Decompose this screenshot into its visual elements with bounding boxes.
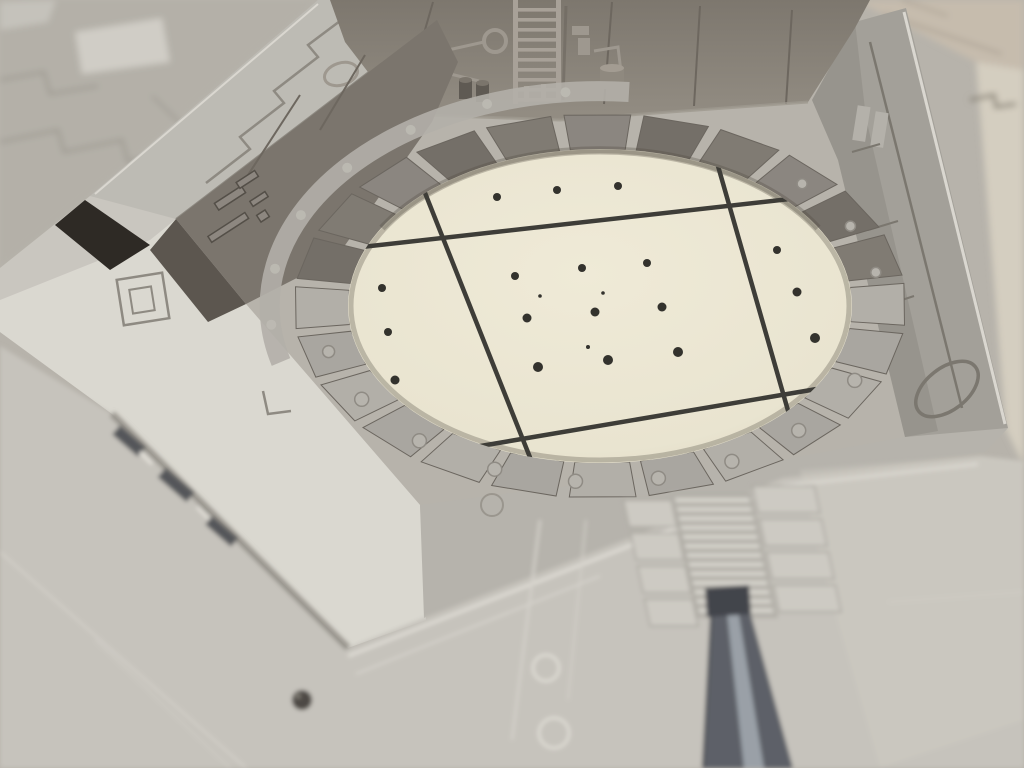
floor-vent-hole — [591, 308, 600, 317]
track-rung — [679, 516, 754, 520]
collar-bump — [270, 264, 280, 274]
track-rung — [675, 498, 750, 502]
track-side-panel — [623, 500, 677, 527]
track-rung — [691, 572, 766, 576]
collar-bump — [296, 210, 306, 220]
floor-vent-hole — [601, 291, 605, 295]
mini-cylinder-greeble-top — [459, 77, 472, 83]
floor-vent-hole — [384, 328, 392, 336]
collar-bump — [406, 125, 416, 135]
ring-rivet — [355, 392, 369, 406]
track-rung — [681, 526, 756, 530]
scene-canvas — [0, 0, 1024, 768]
floor-vent-hole — [673, 347, 683, 357]
track-side-panel — [630, 533, 684, 560]
ring-rivet — [848, 373, 862, 387]
track-rung — [693, 581, 768, 585]
bracket-greeble — [578, 38, 590, 55]
track-side-panel — [752, 486, 820, 513]
track-side-panel — [759, 519, 827, 546]
floor-vent-hole — [391, 376, 400, 385]
ladder-rung — [513, 18, 561, 22]
floor-vent-hole — [603, 355, 613, 365]
floor-vent-hole — [523, 314, 532, 323]
ladder-rung — [513, 38, 561, 42]
floor-vent-hole — [538, 294, 542, 298]
collar-bump — [482, 99, 492, 109]
ring-rivet — [725, 454, 739, 468]
track-rung — [689, 562, 764, 566]
mini-cylinder-greeble-top — [476, 80, 489, 86]
floor-vent-hole — [810, 333, 820, 343]
ladder-rung — [513, 48, 561, 52]
ring-rivet — [871, 267, 881, 277]
ring-rivet — [651, 471, 665, 485]
track-side-panel — [766, 552, 834, 579]
hull-screw-highlight — [295, 693, 301, 699]
ladder-rung — [513, 68, 561, 72]
ring-segment — [564, 115, 631, 150]
ladder-rung — [513, 8, 561, 12]
floor-vent-hole — [643, 259, 651, 267]
floor-vent-hole — [793, 288, 802, 297]
ladder-rung — [513, 78, 561, 82]
model-kit-photo — [0, 0, 1024, 768]
track-side-panel — [644, 599, 698, 626]
floor-vent-hole — [773, 246, 781, 254]
ring-rivet — [488, 462, 502, 476]
floor-vent-hole — [533, 362, 543, 372]
ring-rivet — [323, 346, 335, 358]
track-side-panel — [637, 566, 691, 593]
ring-rivet — [569, 474, 583, 488]
track-rung — [677, 507, 752, 511]
collar-bump — [266, 320, 276, 330]
canister-greeble-top — [600, 64, 624, 72]
ring-rivet — [792, 424, 806, 438]
ladder-rung — [513, 58, 561, 62]
floor-vent-hole — [578, 264, 586, 272]
ring-rivet — [797, 179, 807, 189]
ring-segment — [296, 287, 350, 329]
floor-vent-hole — [493, 193, 501, 201]
floor-vent-hole — [378, 284, 386, 292]
hull-screw — [292, 690, 312, 710]
track-side-panel — [773, 585, 841, 612]
ring-rivet — [845, 221, 855, 231]
collar-bump — [342, 163, 352, 173]
floor-vent-hole — [586, 345, 590, 349]
ring-segment — [850, 283, 904, 325]
bracket-greeble — [572, 26, 589, 35]
track-rung — [685, 544, 760, 548]
track-rung — [683, 535, 758, 539]
floor-vent-hole — [614, 182, 622, 190]
floor-vent-hole — [553, 186, 561, 194]
ladder-rung — [513, 28, 561, 32]
floor-vent-hole — [658, 303, 667, 312]
track-rung — [687, 553, 762, 557]
collar-bump — [561, 87, 571, 97]
ring-rivet — [412, 434, 426, 448]
floor-vent-hole — [511, 272, 519, 280]
